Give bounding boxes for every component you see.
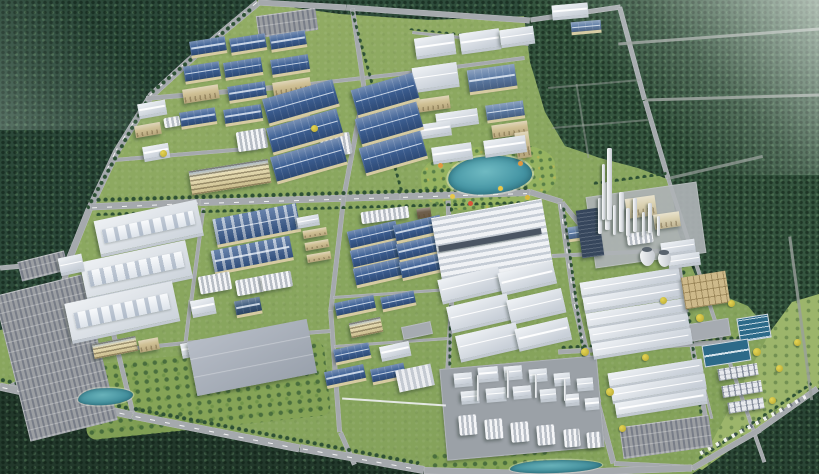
yellow-tree — [769, 397, 776, 404]
solar-roof-building — [680, 271, 729, 310]
warehouse-blue — [227, 81, 267, 101]
cooling-tower — [640, 249, 655, 266]
process-tower — [642, 212, 645, 236]
warehouse-blue — [179, 107, 217, 126]
process-unit — [529, 368, 548, 380]
office-building — [349, 316, 383, 337]
dormitory-row — [304, 239, 329, 251]
industrial-park-aerial-render — [0, 0, 819, 474]
tank-group — [163, 116, 180, 129]
silo-group — [261, 271, 293, 292]
process-unit — [585, 397, 600, 407]
warehouse-blue — [571, 20, 602, 33]
chimney — [564, 379, 566, 401]
warehouse-blue — [270, 54, 310, 75]
yellow-tree — [794, 339, 801, 346]
process-unit — [486, 387, 507, 400]
yellow-tree — [728, 300, 735, 307]
water-basin-lanes — [736, 314, 771, 343]
flower-bed — [498, 186, 503, 191]
yellow-tree — [619, 425, 626, 432]
process-tower — [633, 198, 637, 232]
process-unit — [478, 366, 499, 380]
process-tower — [657, 216, 660, 236]
yellow-tree — [660, 297, 667, 304]
warehouse-blue — [324, 364, 366, 386]
process-unit — [577, 377, 594, 388]
utility-pad — [401, 321, 433, 340]
process-tower — [648, 203, 652, 233]
chimney — [535, 374, 537, 398]
silo-battery — [458, 414, 478, 435]
warehouse-blue — [223, 57, 263, 78]
silo-row — [360, 206, 409, 225]
chimney — [507, 370, 509, 398]
process-unit — [565, 393, 580, 403]
yellow-tree — [160, 150, 167, 157]
factory-tan — [138, 337, 160, 353]
flower-bed — [438, 163, 443, 168]
flower-bed — [518, 161, 523, 166]
workshop-white — [552, 2, 589, 17]
process-unit — [554, 372, 571, 383]
yellow-tree — [776, 365, 783, 372]
silo-battery — [586, 431, 601, 448]
workshop-white — [190, 297, 216, 315]
cooling-tower — [658, 252, 671, 267]
warehouse-blue — [223, 104, 263, 124]
silo-building — [198, 271, 233, 294]
yellow-tree — [606, 388, 614, 396]
silo-battery — [510, 421, 530, 442]
silo-battery — [563, 428, 581, 447]
process-tower — [613, 205, 616, 235]
flower-bed — [468, 201, 473, 206]
factory-tan — [182, 84, 220, 103]
cross-road — [114, 146, 258, 162]
warehouse-white — [506, 288, 566, 322]
process-tower — [626, 208, 630, 236]
dormitory-row — [302, 227, 327, 239]
office-building — [92, 335, 138, 358]
pipeline — [342, 397, 446, 406]
warehouse-blue — [485, 100, 525, 120]
yellow-tree — [581, 348, 589, 356]
process-unit — [540, 388, 557, 399]
chimney — [602, 164, 605, 220]
yellow-tree — [753, 348, 761, 356]
process-tower — [619, 192, 624, 232]
warehouse-blue — [467, 64, 518, 92]
silo-battery — [536, 424, 556, 445]
dormitory-row — [296, 214, 319, 226]
workshop-white — [411, 62, 459, 90]
workshop-white — [414, 33, 456, 56]
warehouse-blue — [229, 33, 267, 52]
flower-bed — [525, 195, 530, 200]
factory-tan — [134, 122, 162, 138]
silo-group — [236, 128, 269, 152]
yellow-tree — [311, 125, 318, 132]
flower-bed — [450, 194, 455, 199]
workshop-white — [499, 25, 535, 45]
process-unit — [454, 372, 473, 385]
yellow-tree — [696, 314, 704, 322]
office-building — [189, 159, 272, 195]
workshop-white — [483, 135, 527, 155]
process-unit — [513, 385, 532, 397]
north-south-road — [329, 196, 347, 311]
workshop-white — [431, 142, 473, 161]
yellow-tree — [642, 354, 649, 361]
silo-battery — [484, 418, 504, 439]
chimney — [477, 375, 479, 401]
warehouse-blue — [234, 297, 262, 316]
dormitory-row — [306, 251, 331, 263]
chimney — [607, 148, 612, 220]
